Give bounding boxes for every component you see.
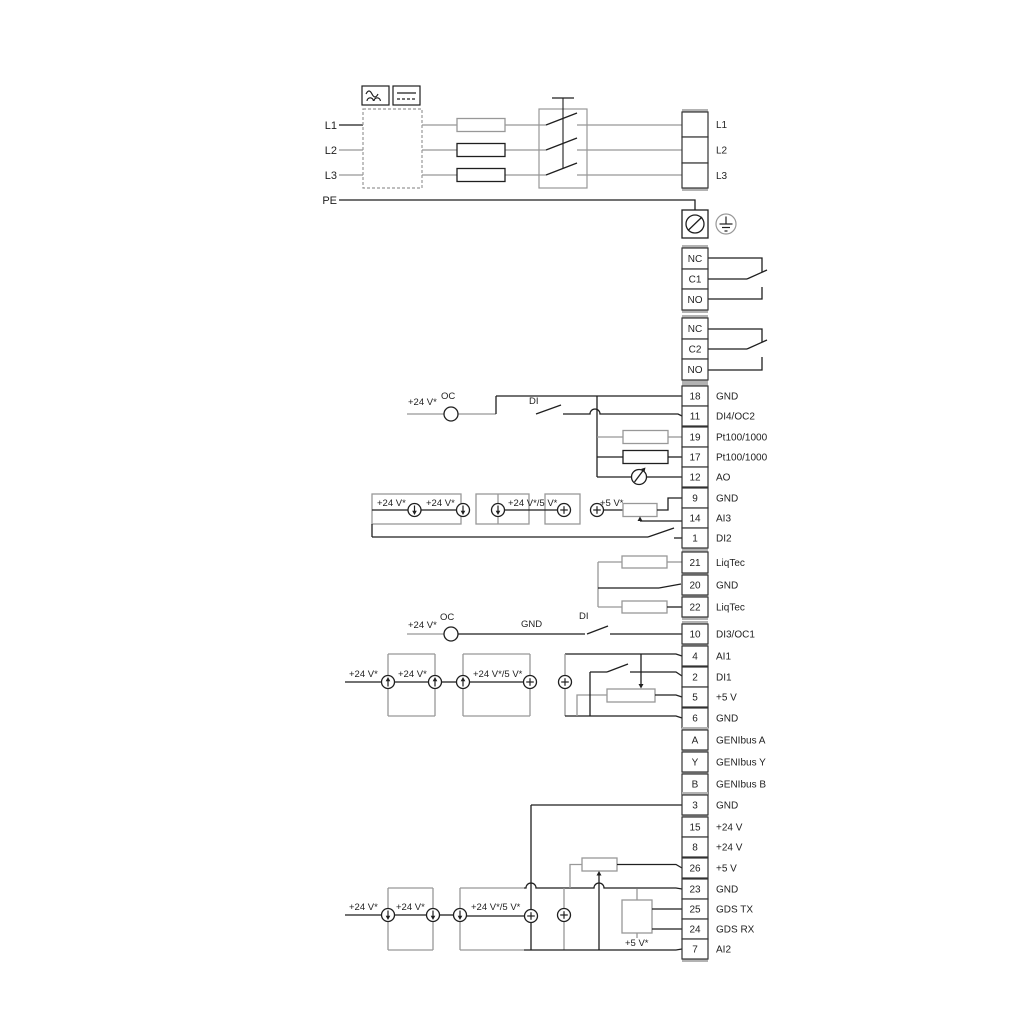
terminal-number: 5: [692, 693, 698, 704]
fuse-l1: [457, 119, 505, 132]
terminal-number: 26: [689, 864, 701, 875]
terminal-number: 12: [689, 473, 701, 484]
terminal-label: AI3: [716, 514, 731, 525]
ann-24v: +24 V*: [349, 669, 378, 680]
terminal-label: Pt100/1000: [716, 433, 768, 444]
terminal-label: +24 V: [716, 843, 743, 854]
current-source-icon: [429, 676, 442, 689]
terminal-label: GND: [716, 801, 738, 812]
ann-24v-5v: +24 V*/5 V*: [471, 902, 521, 913]
voltage-source-icon: [559, 676, 572, 689]
voltage-source-icon: [591, 504, 604, 517]
liqtec-wiring: [598, 556, 682, 613]
terminal-cell: [682, 112, 708, 137]
terminal-label: DI3/OC1: [716, 630, 755, 641]
terminal-label: AI2: [716, 945, 731, 956]
terminal-number: NO: [688, 365, 703, 376]
di1-switch-blade: [607, 664, 628, 672]
terminal-label: +5 V: [716, 693, 737, 704]
terminal-label: DI1: [716, 673, 732, 684]
circuit-symbols: [382, 407, 604, 923]
ann-24v-5v: +24 V*/5 V*: [473, 669, 523, 680]
terminal-number: 24: [689, 925, 701, 936]
label-l1-in: L1: [325, 120, 337, 132]
terminal-cell: [682, 137, 708, 163]
io3-terminals: 3GND15+24 V8+24 V26+5 V23GND25GDS TX24GD…: [682, 792, 755, 962]
ann-24v: +24 V*: [408, 397, 437, 408]
current-source-icon: [382, 676, 395, 689]
pe-wire: [339, 200, 695, 210]
ann-gnd: GND: [521, 619, 542, 630]
terminal-number: 20: [689, 581, 701, 592]
pot-wiper-arrow: [639, 684, 644, 689]
terminal-label: Pt100/1000: [716, 453, 768, 464]
voltage-source-icon: [525, 910, 538, 923]
di2-switch-blade: [648, 528, 674, 537]
fuses: [457, 119, 505, 182]
terminal-label: L1: [716, 120, 728, 131]
terminal-number: 22: [689, 603, 701, 614]
terminal-number: 2: [692, 673, 698, 684]
terminal-number: 15: [689, 823, 701, 834]
terminal-label: GENIbus Y: [716, 758, 766, 769]
relay2-contacts: [708, 329, 767, 370]
terminal-label: LiqTec: [716, 558, 745, 569]
terminal-label: GND: [716, 392, 738, 403]
terminal-number: 11: [690, 412, 701, 423]
current-source-icon: [457, 676, 470, 689]
ann-oc: OC: [441, 391, 455, 402]
pot-wiper-arrow: [638, 517, 643, 522]
analog-meter-icon: [632, 468, 647, 485]
voltage-source-icon: [558, 909, 571, 922]
terminal-number: 10: [689, 630, 701, 641]
ac-symbol-icon: [362, 86, 389, 105]
terminal-label: GND: [716, 581, 738, 592]
terminal-label: GND: [716, 885, 738, 896]
terminal-number: 23: [689, 885, 701, 896]
pt100-sensor-1: [623, 431, 668, 444]
terminal-number: C2: [689, 345, 702, 356]
ann-24v: +24 V*: [396, 902, 425, 913]
terminal-number: A: [692, 736, 699, 747]
terminal-number: 9: [692, 494, 698, 505]
ann-24v: +24 V*: [398, 669, 427, 680]
terminal-number: 25: [689, 905, 701, 916]
terminal-label: AI1: [716, 652, 731, 663]
ann-24v: +24 V*: [408, 620, 437, 631]
io2-terminals: 10DI3/OC14AI12DI15+5 V6GND: [682, 621, 755, 731]
emc-filter-box: [363, 109, 422, 188]
ann-24v: +24 V*: [349, 902, 378, 913]
terminal-label: GENIbus B: [716, 780, 766, 791]
io1-wiring: [372, 396, 682, 538]
di4-switch-blade: [536, 405, 561, 414]
terminal-number: B: [692, 780, 699, 791]
current-sink-icon: [457, 504, 470, 517]
terminal-number: 3: [692, 801, 698, 812]
terminal-number: 19: [689, 433, 701, 444]
terminal-number: 1: [692, 534, 698, 545]
terminal-label: GDS TX: [716, 905, 753, 916]
terminal-number: 8: [692, 843, 698, 854]
voltage-source-icon: [558, 504, 571, 517]
current-sink-icon: [427, 909, 440, 922]
mains-input-labels: L1 L2 L3 PE: [322, 120, 337, 207]
label-pe-in: PE: [322, 195, 337, 207]
open-collector-icon: [444, 407, 458, 421]
terminal-label: DI2: [716, 534, 732, 545]
terminal-number: NO: [688, 295, 703, 306]
di3-switch-blade: [587, 626, 608, 634]
wiring-diagram-page: L1 L2 L3 PE +24 V* OC DI +24 V* +24 V* +…: [0, 0, 1024, 1024]
gds-sensor-module: [622, 889, 682, 938]
open-collector-icon: [444, 627, 458, 641]
io1-terminals: 18GND11DI4/OC219Pt100/100017Pt100/100012…: [682, 383, 768, 551]
liqtec-sensor-2: [622, 601, 667, 613]
label-l2-in: L2: [325, 145, 337, 157]
terminal-label: DI4/OC2: [716, 412, 755, 423]
pt100-sensor-2: [623, 451, 668, 464]
relay2-terminals: NCC2NO: [682, 315, 708, 383]
terminal-label: +24 V: [716, 823, 743, 834]
pe-screw-terminal: [682, 210, 708, 238]
terminal-number: 17: [689, 453, 701, 464]
ann-24v: +24 V*: [377, 498, 406, 509]
ann-5v: +5 V*: [625, 938, 649, 949]
terminal-label: AO: [716, 473, 731, 484]
fuse-l3: [457, 169, 505, 182]
terminal-number: 4: [692, 652, 698, 663]
terminal-label: GENIbus A: [716, 736, 766, 747]
terminal-label: GND: [716, 714, 738, 725]
liqtec-sensor-1: [622, 556, 667, 568]
terminal-number: 14: [689, 514, 701, 525]
mains-input-wires: [339, 125, 363, 175]
terminal-label: GND: [716, 494, 738, 505]
current-sink-icon: [454, 909, 467, 922]
terminal-label: LiqTec: [716, 603, 745, 614]
power-out-terminals: L1L2L3: [682, 109, 728, 191]
relay1-contacts: [708, 258, 767, 299]
label-l3-in: L3: [325, 170, 337, 182]
genibus-terminals: AGENIbus AYGENIbus YBGENIbus B: [682, 727, 766, 797]
ann-24v-5v: +24 V*/5 V*: [508, 498, 558, 509]
pump-terminal-wiring-diagram: L1 L2 L3 PE +24 V* OC DI +24 V* +24 V* +…: [0, 0, 1024, 1024]
terminal-label: GDS RX: [716, 925, 755, 936]
relay1-terminals: NCC1NO: [682, 245, 708, 313]
potentiometer-ai1: [607, 689, 655, 702]
relay1-blade: [747, 270, 767, 279]
terminal-label: +5 V: [716, 864, 737, 875]
current-sink-icon: [382, 909, 395, 922]
terminal-number: NC: [688, 254, 702, 265]
terminal-number: Y: [692, 758, 699, 769]
current-sink-icon: [408, 504, 421, 517]
voltage-source-icon: [524, 676, 537, 689]
terminal-number: 21: [689, 558, 701, 569]
ann-di: DI: [529, 396, 539, 407]
ann-di: DI: [579, 611, 589, 622]
current-sink-icon: [492, 504, 505, 517]
terminal-label: L2: [716, 146, 728, 157]
potentiometer-ai2: [582, 858, 617, 871]
terminal-number: 6: [692, 714, 698, 725]
terminal-label: L3: [716, 171, 728, 182]
fuse-l2: [457, 144, 505, 157]
pot-wiper-arrow: [597, 871, 602, 876]
earth-symbol-icon: [716, 214, 736, 234]
terminal-number: C1: [689, 275, 702, 286]
terminal-cell: [682, 163, 708, 188]
potentiometer-ai3: [623, 504, 657, 517]
liqtec-terminals: 21LiqTec20GND22LiqTec: [682, 549, 745, 620]
dc-symbol-icon: [393, 86, 420, 105]
io3-wiring: [345, 805, 682, 950]
ann-oc: OC: [440, 612, 454, 623]
ann-24v: +24 V*: [426, 498, 455, 509]
terminal-number: 18: [689, 392, 701, 403]
terminal-number: 7: [692, 945, 698, 956]
terminal-number: NC: [688, 324, 702, 335]
relay2-blade: [747, 340, 767, 349]
